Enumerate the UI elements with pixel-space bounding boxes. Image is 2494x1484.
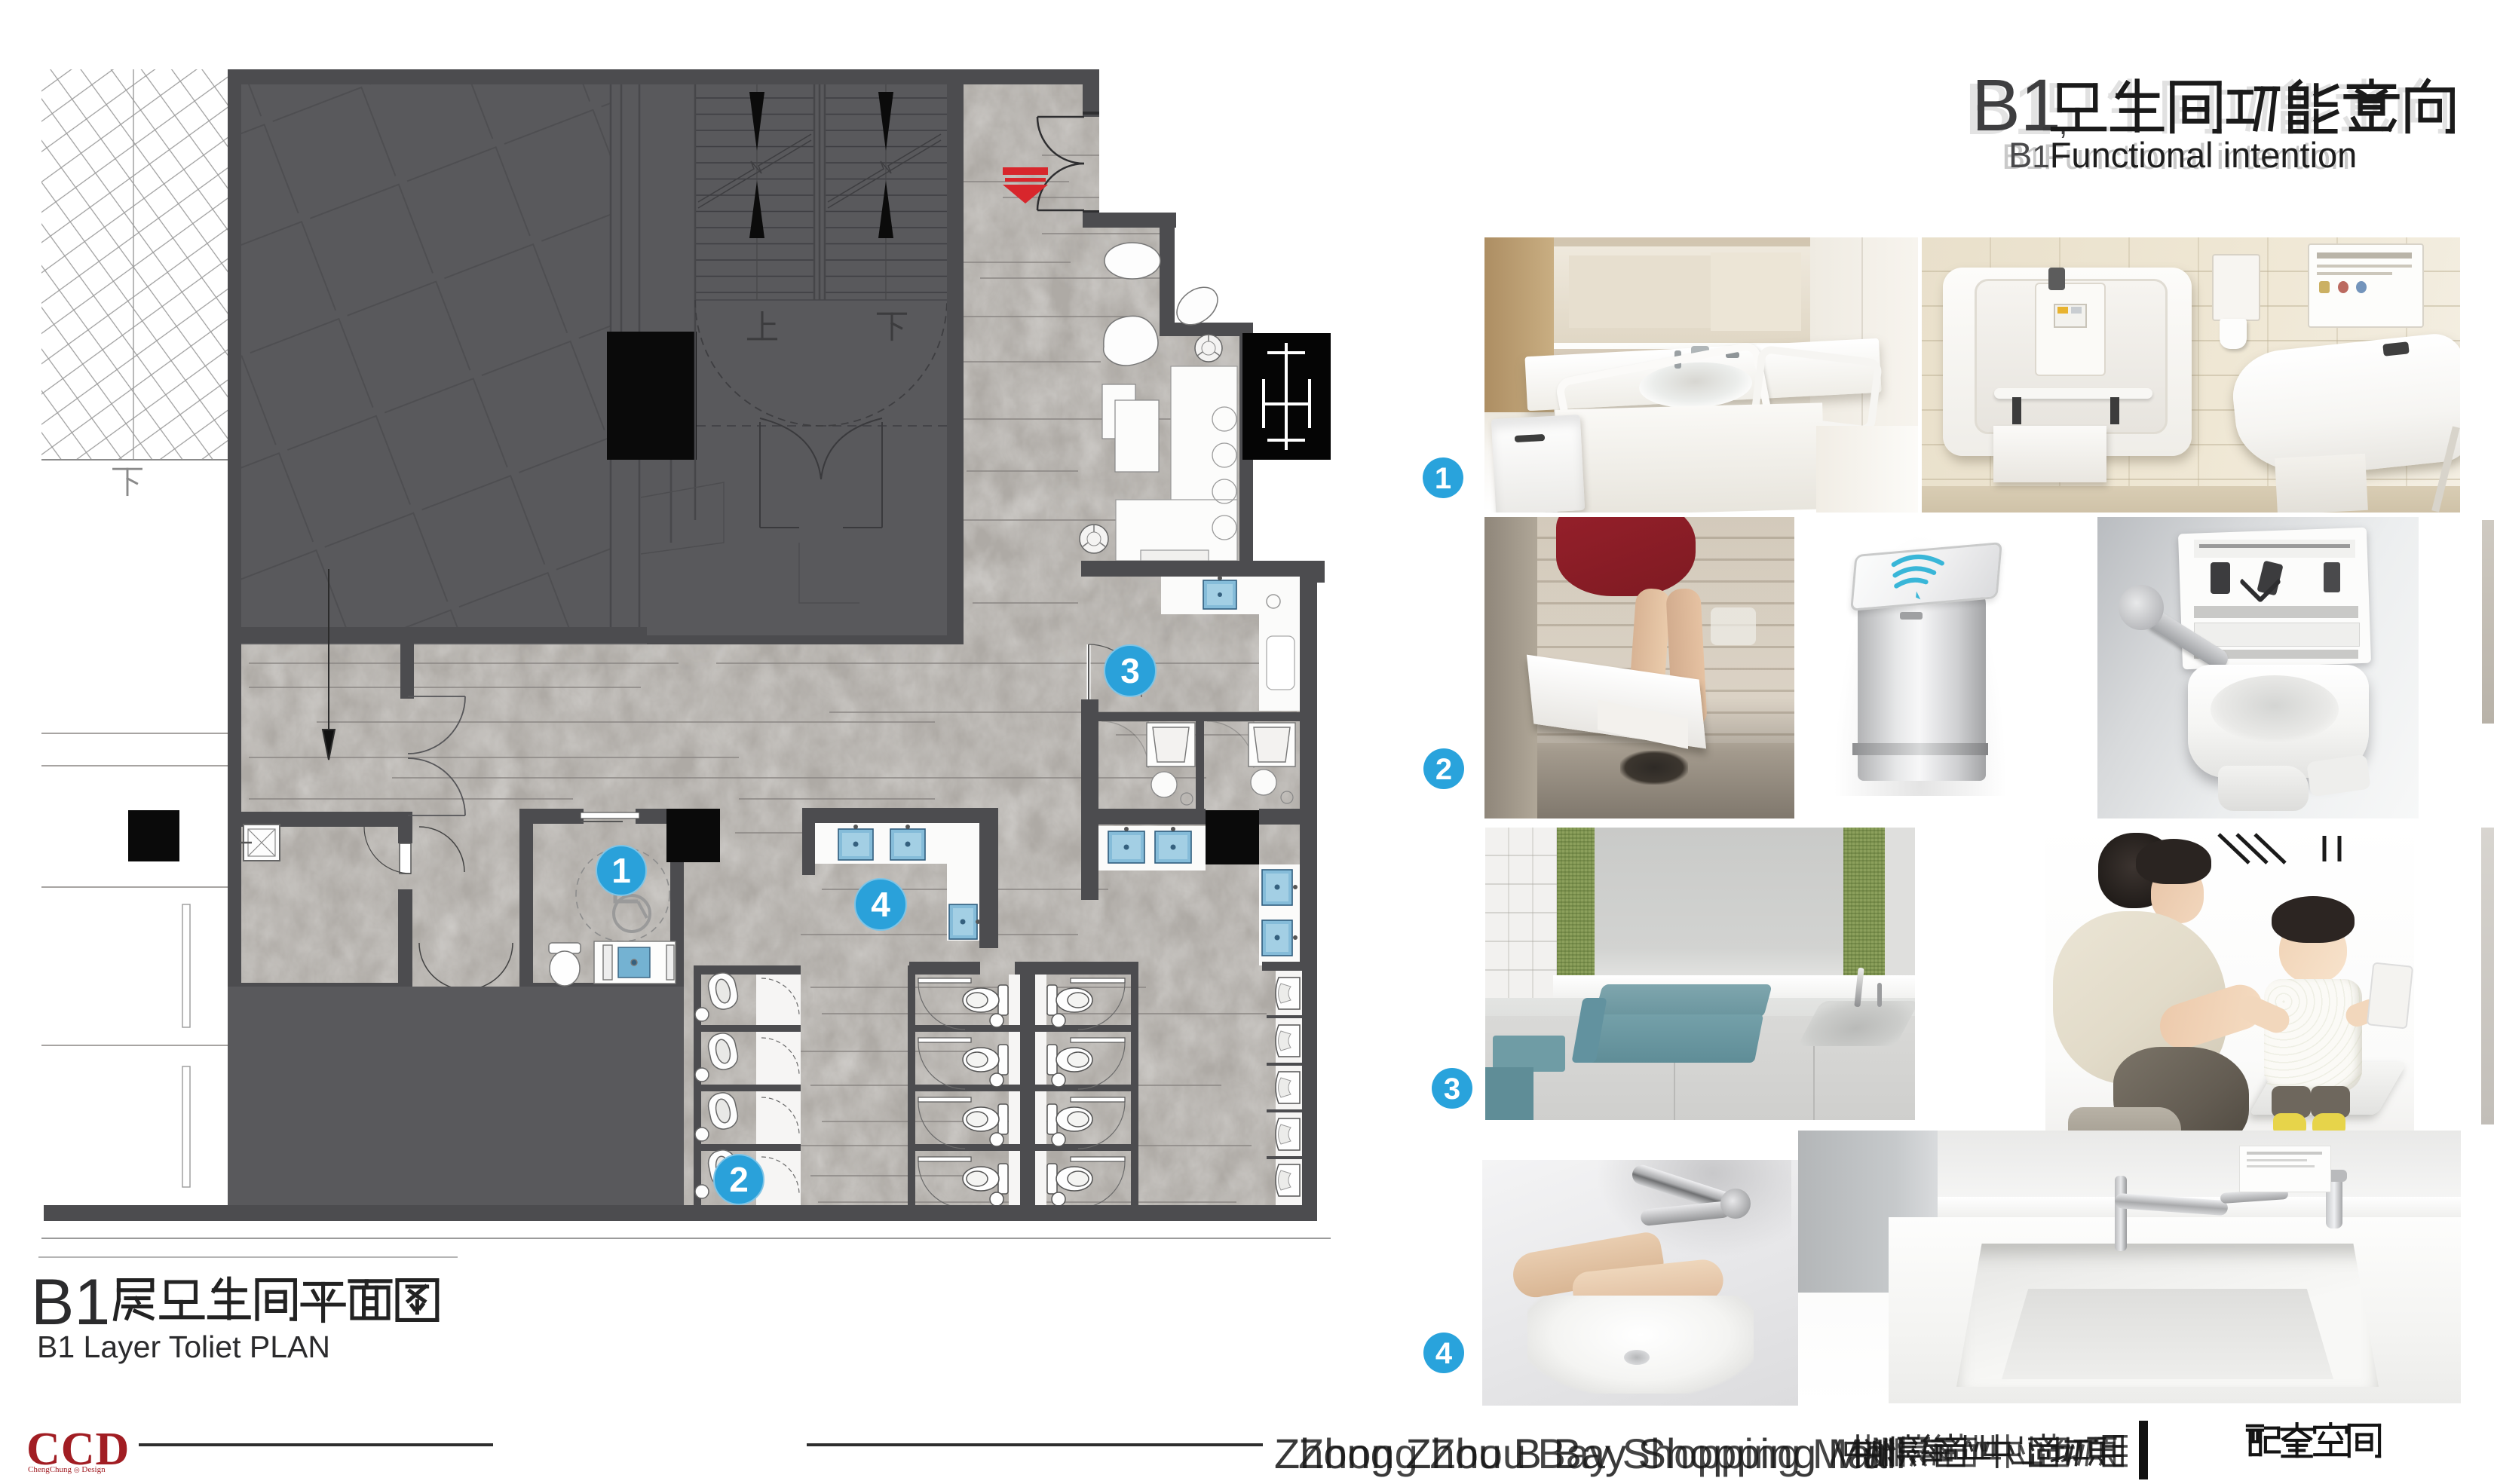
svg-text:4: 4: [1435, 1337, 1453, 1370]
svg-text:2: 2: [1435, 753, 1452, 786]
svg-text:B1: B1: [31, 1276, 110, 1336]
svg-text:1: 1: [1435, 462, 1451, 495]
svg-text:1: 1: [611, 851, 631, 890]
svg-text:Zhong Zhou Bay Shopping Mall: Zhong Zhou Bay Shopping Mall: [1298, 1430, 1890, 1477]
svg-text:4: 4: [871, 885, 890, 924]
svg-text:3: 3: [1120, 651, 1140, 690]
svg-text:2: 2: [729, 1160, 749, 1199]
svg-text:3: 3: [1444, 1072, 1460, 1106]
